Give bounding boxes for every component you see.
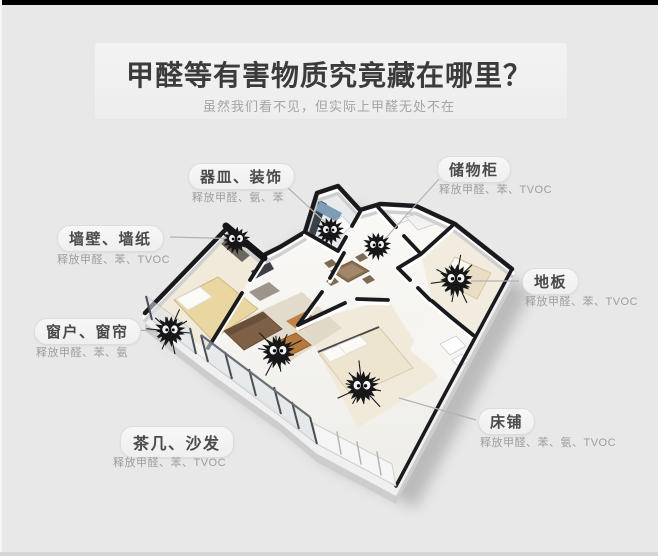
callout-sofa-table-substances: 释放甲醛、苯、TVOC: [113, 454, 226, 470]
infographic: 甲醛等有害物质究竟藏在哪里？ 虽然我们看不见，但实际上甲醛无处不在: [0, 0, 658, 556]
callout-window-curtain-label: 窗户、窗帘: [34, 318, 141, 345]
bottom-gray-strip: [0, 552, 658, 556]
callout-wall-wallpaper-label: 墙壁、墙纸: [57, 225, 164, 252]
callout-window-curtain: 窗户、窗帘 释放甲醛、苯、氨: [34, 318, 141, 345]
callout-decor-items-substances: 释放甲醛、氨、苯: [192, 189, 284, 205]
callout-bed-label: 床铺: [478, 408, 535, 435]
callout-decor-items-label: 器皿、装饰: [188, 163, 295, 190]
callout-bed-substances: 释放甲醛、苯、氨、TVOC: [480, 434, 616, 450]
callout-floor-substances: 释放甲醛、苯、TVOC: [525, 293, 638, 309]
callout-bed: 床铺 释放甲醛、苯、氨、TVOC: [478, 408, 535, 435]
callout-wall-wallpaper: 墙壁、墙纸 释放甲醛、苯、TVOC: [57, 225, 164, 252]
callout-window-curtain-substances: 释放甲醛、苯、氨: [36, 344, 128, 360]
callout-storage-cabinet-substances: 释放甲醛、苯、TVOC: [439, 181, 552, 197]
callout-floor-label: 地板: [522, 268, 579, 295]
callout-wall-wallpaper-substances: 释放甲醛、苯、TVOC: [57, 251, 170, 267]
callout-storage-cabinet-label: 储物柜: [437, 156, 511, 183]
callout-storage-cabinet: 储物柜 释放甲醛、苯、TVOC: [437, 156, 511, 183]
callout-decor-items: 器皿、装饰 释放甲醛、氨、苯: [188, 163, 295, 190]
callout-floor: 地板 释放甲醛、苯、TVOC: [522, 268, 579, 295]
callout-sofa-table: 茶几、沙发 释放甲醛、苯、TVOC: [120, 426, 234, 458]
